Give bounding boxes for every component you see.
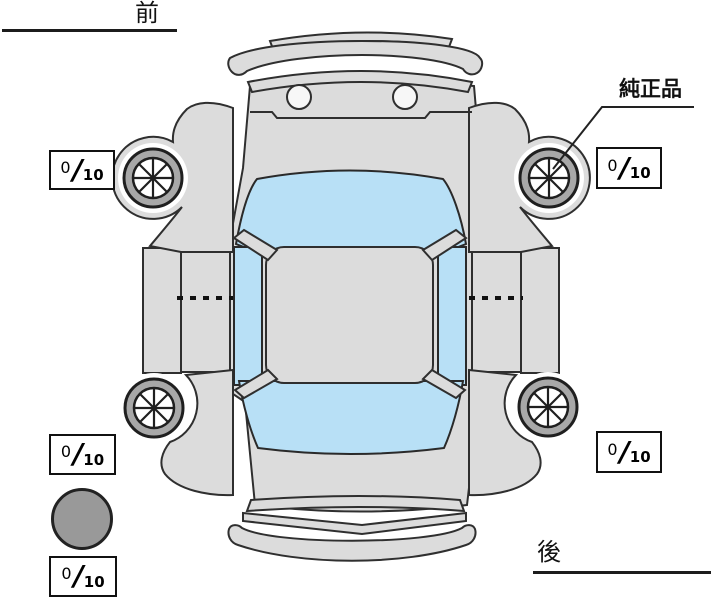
front-underline [2, 29, 177, 32]
tread-score-front-right: 0/10 [596, 147, 662, 189]
score-separator: / [620, 435, 630, 468]
front-label: 前 [135, 2, 160, 26]
left-side-panel [143, 248, 233, 373]
score-max: 10 [630, 164, 651, 182]
right-side-window [438, 247, 466, 385]
score-max: 10 [83, 451, 104, 469]
rear-left-wheel [119, 373, 189, 443]
score-separator: / [620, 151, 630, 184]
front-right-wheel [514, 143, 584, 213]
tread-score-front-left: 0/10 [49, 150, 115, 190]
score-separator: / [73, 153, 83, 186]
score-value: 0 [607, 440, 617, 459]
score-max: 10 [84, 573, 105, 591]
score-value: 0 [60, 158, 70, 177]
front-left-wheel [118, 143, 188, 213]
rear-underline [533, 571, 711, 574]
score-separator: / [74, 559, 84, 592]
tread-score-spare: 0/10 [49, 556, 117, 597]
rear-bumper [228, 496, 475, 561]
score-max: 10 [630, 448, 651, 466]
rear-label: 後 [537, 541, 561, 565]
score-value: 0 [607, 156, 617, 175]
left-side-window [234, 247, 262, 385]
right-side-panel [469, 248, 559, 373]
score-value: 0 [61, 564, 71, 583]
vehicle-inspection-diagram: 前 純正品 後 0/10 0/10 0/10 0/10 0/10 [0, 0, 711, 600]
score-value: 0 [61, 442, 71, 461]
roof [266, 247, 433, 383]
score-max: 10 [83, 166, 104, 184]
windshield [236, 171, 466, 255]
score-separator: / [73, 437, 83, 470]
tread-score-rear-left: 0/10 [49, 434, 116, 475]
rear-window [239, 381, 463, 454]
tread-score-rear-right: 0/10 [596, 431, 662, 473]
rear-right-wheel [513, 372, 583, 442]
spare-tire-circle [51, 488, 113, 550]
genuine-part-label: 純正品 [619, 79, 682, 100]
